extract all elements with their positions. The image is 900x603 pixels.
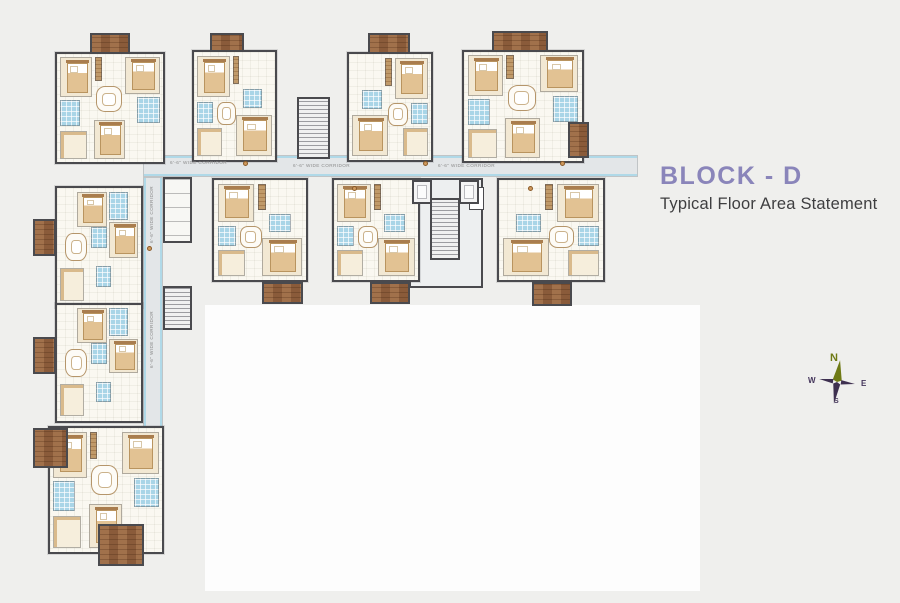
- unit-c: [347, 52, 433, 162]
- balcony: [262, 282, 303, 304]
- bed-icon: [359, 121, 383, 151]
- title-block: BLOCK - D Typical Floor Area Statement: [660, 162, 877, 214]
- bed-icon: [129, 438, 153, 470]
- bed-icon: [225, 189, 249, 218]
- unit-g: [497, 178, 605, 282]
- room-bath: [53, 481, 74, 511]
- room-bath: [91, 227, 108, 248]
- room-bath: [384, 214, 404, 232]
- block-title: BLOCK - D: [660, 162, 877, 191]
- room-bath: [137, 97, 160, 123]
- room-table: [549, 226, 574, 248]
- bed-icon: [83, 313, 103, 339]
- compass-star-icon: [817, 359, 857, 405]
- room-ward: [258, 184, 265, 210]
- room-table: [65, 349, 87, 377]
- bed-icon: [243, 120, 267, 151]
- balcony: [33, 337, 56, 374]
- room-table: [91, 465, 118, 495]
- staircase: [430, 198, 460, 260]
- door-marker: [423, 161, 428, 166]
- room-bed: [122, 432, 159, 474]
- bed-icon: [270, 243, 297, 272]
- room-bath: [197, 102, 213, 124]
- bed-icon: [512, 243, 542, 272]
- block-subtitle: Typical Floor Area Statement: [660, 195, 877, 214]
- room-kitchen: [60, 131, 87, 159]
- bed-icon: [565, 189, 592, 218]
- room-bed: [378, 238, 415, 276]
- room-bed: [77, 308, 107, 343]
- unit-h: [55, 186, 143, 308]
- bed-icon: [115, 344, 135, 370]
- lift: [459, 180, 479, 204]
- room-bed: [503, 238, 549, 276]
- room-bath: [362, 90, 382, 109]
- corridor-label: 6'-6" WIDE CORRIDOR: [150, 298, 156, 368]
- unit-i: [55, 303, 143, 423]
- room-ward: [90, 432, 97, 459]
- room-bed: [109, 222, 138, 257]
- room-bath: [96, 266, 111, 287]
- room-bath: [516, 214, 541, 232]
- room-bed: [505, 118, 539, 157]
- room-kitchen: [53, 516, 81, 548]
- door-marker: [243, 161, 248, 166]
- unit-e: [212, 178, 308, 282]
- empty-area: [205, 305, 700, 591]
- room-bath: [109, 192, 127, 220]
- room-bed: [218, 184, 255, 222]
- room-bath: [337, 226, 354, 246]
- room-ward: [95, 57, 101, 81]
- bed-icon: [115, 227, 135, 254]
- room-kitchen: [468, 129, 498, 157]
- room-bed: [352, 115, 388, 155]
- balcony: [532, 282, 572, 306]
- room-bath: [578, 226, 599, 246]
- unit-b: [192, 50, 277, 162]
- room-bed: [540, 55, 579, 92]
- balcony: [568, 122, 589, 158]
- bed-icon: [401, 64, 423, 94]
- compass-rose: N W E S: [806, 352, 870, 412]
- lift: [412, 180, 432, 204]
- corridor-label: 6'-6" WIDE CORRIDOR: [438, 164, 508, 170]
- room-bath: [269, 214, 291, 232]
- corridor-label: 6'-6" WIDE CORRIDOR: [293, 164, 363, 170]
- room-ward: [374, 184, 381, 210]
- corridor-label: 6'-6" WIDE CORRIDOR: [170, 161, 240, 167]
- balcony: [370, 282, 410, 304]
- room-kitchen: [60, 384, 84, 416]
- unit-d: [462, 50, 584, 163]
- room-bed: [94, 120, 125, 159]
- balcony: [90, 33, 130, 54]
- balcony: [210, 33, 244, 52]
- bed-icon: [132, 62, 155, 90]
- room-bed: [125, 57, 160, 94]
- room-ward: [545, 184, 553, 210]
- bed-icon: [385, 243, 409, 272]
- bed-icon: [83, 197, 103, 224]
- door-marker: [560, 161, 565, 166]
- room-kitchen: [403, 128, 428, 156]
- room-kitchen: [218, 250, 246, 276]
- room-bath: [468, 99, 490, 125]
- bed-icon: [67, 63, 88, 93]
- room-bed: [60, 57, 92, 97]
- room-bath: [60, 100, 80, 126]
- room-bed: [395, 58, 428, 98]
- door-marker: [147, 246, 152, 251]
- bed-icon: [100, 125, 120, 154]
- room-bed: [468, 55, 503, 95]
- service-rooms: [163, 177, 192, 243]
- room-table: [508, 85, 536, 111]
- room-bed: [77, 192, 107, 227]
- balcony: [368, 33, 410, 54]
- room-ward: [385, 58, 392, 86]
- room-bath: [91, 343, 108, 364]
- room-bath: [218, 226, 236, 246]
- unit-a: [55, 52, 165, 164]
- room-bed: [262, 238, 302, 276]
- door-marker: [352, 186, 357, 191]
- room-ward: [233, 56, 239, 84]
- balcony: [33, 428, 68, 468]
- room-bath: [109, 308, 127, 336]
- bed-icon: [475, 61, 498, 91]
- room-bed: [109, 339, 138, 374]
- room-table: [217, 102, 236, 126]
- bed-icon: [547, 60, 573, 88]
- room-table: [240, 226, 262, 248]
- unit-f: [332, 178, 420, 282]
- room-ward: [506, 55, 513, 79]
- room-bath: [134, 478, 159, 508]
- balcony: [33, 219, 56, 256]
- balcony: [492, 31, 548, 52]
- room-table: [388, 103, 408, 126]
- room-bath: [96, 382, 111, 403]
- compass-east-label: E: [861, 379, 866, 388]
- room-table: [96, 86, 121, 112]
- room-table: [65, 233, 87, 261]
- staircase: [163, 286, 192, 330]
- room-kitchen: [568, 250, 599, 276]
- floor-plan: 6'-6" WIDE CORRIDOR6'-6" WIDE CORRIDOR6'…: [0, 0, 900, 603]
- room-kitchen: [197, 128, 221, 156]
- door-marker: [528, 186, 533, 191]
- corridor-label: 6'-6" WIDE CORRIDOR: [150, 173, 156, 243]
- room-bath: [411, 103, 427, 124]
- room-bath: [243, 89, 262, 108]
- room-kitchen: [60, 268, 84, 301]
- room-bed: [197, 56, 229, 97]
- balcony: [98, 524, 144, 566]
- floor-plan-sheet: 6'-6" WIDE CORRIDOR6'-6" WIDE CORRIDOR6'…: [0, 0, 900, 603]
- room-bed: [236, 115, 272, 156]
- bed-icon: [344, 189, 366, 218]
- staircase: [297, 97, 330, 159]
- room-kitchen: [337, 250, 362, 276]
- bed-icon: [512, 124, 535, 154]
- bed-icon: [204, 62, 225, 93]
- room-bath: [553, 96, 579, 122]
- room-table: [358, 226, 378, 248]
- room-bed: [557, 184, 599, 222]
- compass-west-label: W: [808, 376, 816, 385]
